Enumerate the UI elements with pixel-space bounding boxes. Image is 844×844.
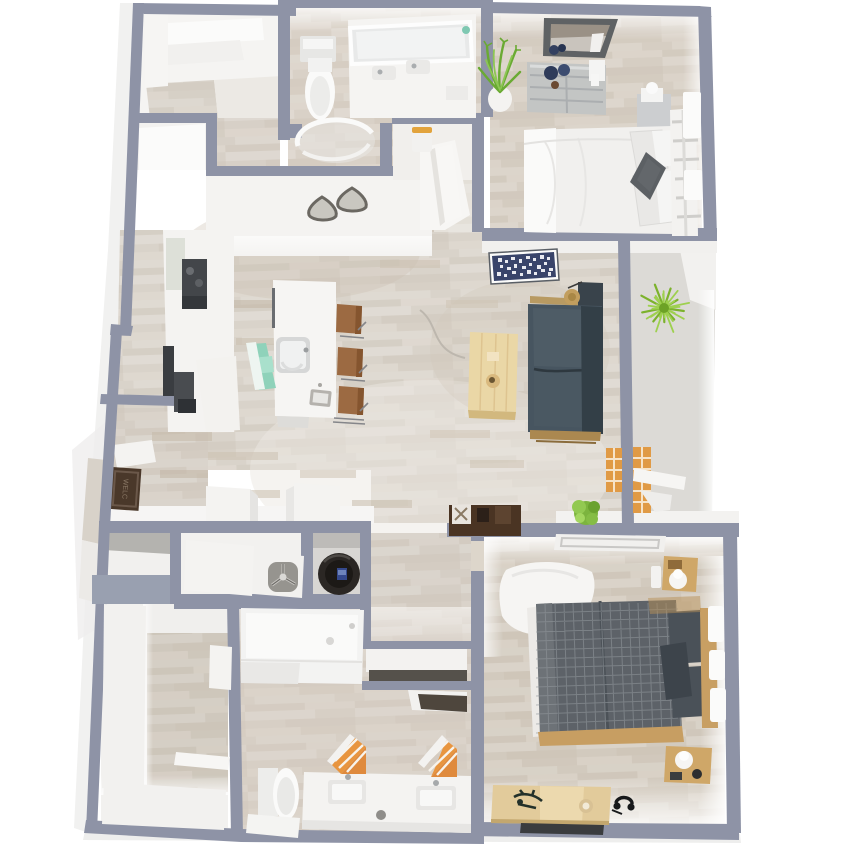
svg-text:WELC: WELC: [120, 479, 128, 500]
